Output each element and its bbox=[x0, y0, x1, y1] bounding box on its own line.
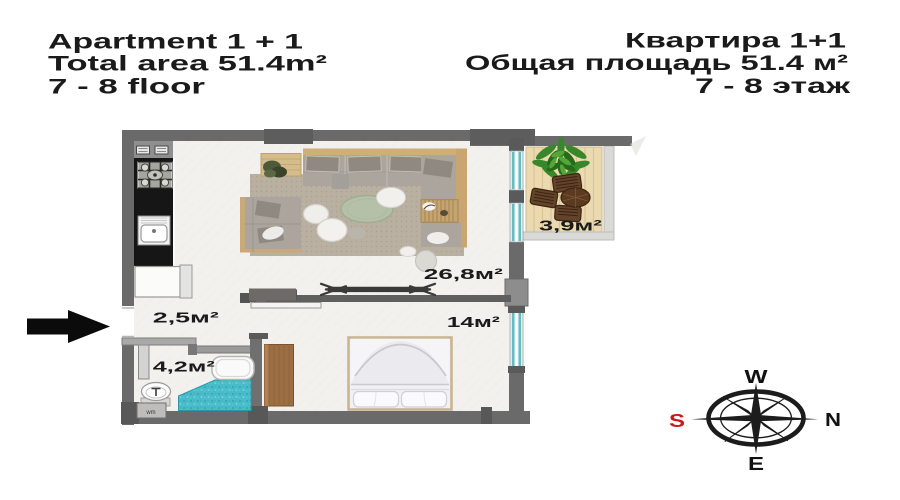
svg-text:N: N bbox=[825, 409, 841, 430]
svg-text:E: E bbox=[748, 453, 764, 474]
svg-text:2,5м²: 2,5м² bbox=[153, 310, 219, 327]
svg-text:7 - 8 этаж: 7 - 8 этаж bbox=[695, 74, 851, 98]
svg-text:Apartment 1 + 1: Apartment 1 + 1 bbox=[48, 30, 303, 54]
svg-text:14м²: 14м² bbox=[447, 314, 500, 331]
svg-text:26,8м²: 26,8м² bbox=[424, 266, 503, 283]
svg-text:Общая площадь 51.4 м²: Общая площадь 51.4 м² bbox=[465, 51, 848, 75]
svg-text:7 - 8 floor: 7 - 8 floor bbox=[48, 75, 206, 99]
svg-text:Квартира 1+1: Квартира 1+1 bbox=[625, 29, 846, 53]
svg-text:W: W bbox=[745, 366, 769, 387]
svg-text:4,2м²: 4,2м² bbox=[153, 359, 215, 376]
svg-text:3,9м²: 3,9м² bbox=[539, 218, 602, 235]
svg-text:S: S bbox=[669, 410, 685, 431]
svg-text:Total area 51.4m²: Total area 51.4m² bbox=[48, 52, 327, 76]
svg-text:wm: wm bbox=[145, 410, 155, 416]
